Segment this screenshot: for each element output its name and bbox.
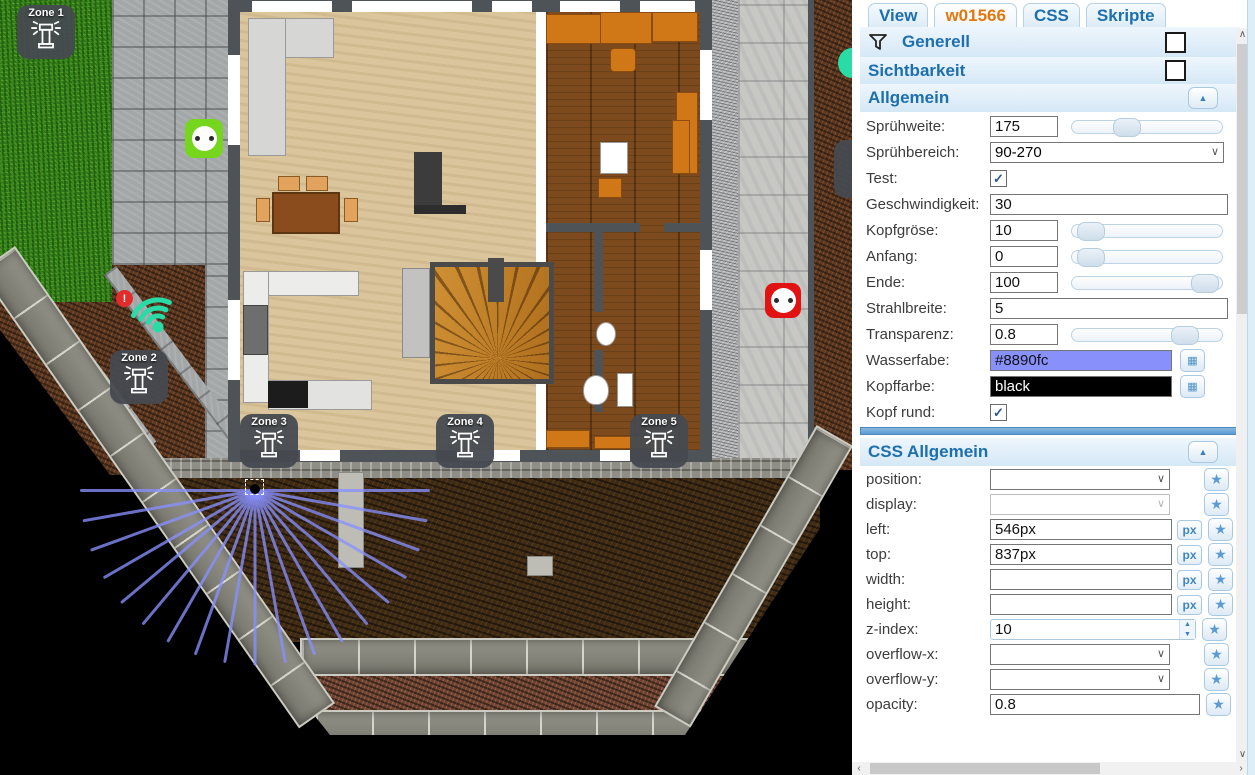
- field-ende: Ende:: [866, 271, 1238, 294]
- field-strahlbreite: Strahlbreite:: [866, 297, 1238, 320]
- px-unit-button[interactable]: px: [1177, 545, 1202, 565]
- field-transparenz: Transparenz:: [866, 323, 1238, 346]
- color-picker-button[interactable]: ▦: [1180, 349, 1205, 372]
- scroll-left-icon[interactable]: ‹: [852, 763, 866, 774]
- sprinkler-icon: [124, 365, 154, 397]
- left-input[interactable]: [990, 519, 1172, 540]
- desk: [600, 12, 652, 44]
- dining-chair: [344, 198, 358, 222]
- favorite-button[interactable]: ★: [1204, 668, 1229, 691]
- spray-ray: [80, 489, 255, 492]
- px-unit-button[interactable]: px: [1177, 520, 1202, 540]
- sink: [596, 322, 616, 346]
- outlet-green[interactable]: [185, 119, 223, 158]
- position-select[interactable]: ∨: [990, 469, 1170, 490]
- zone-marker-2[interactable]: Zone 2: [110, 350, 168, 404]
- top-input[interactable]: [990, 544, 1172, 565]
- tab-widget-w01566[interactable]: w01566: [934, 3, 1017, 27]
- css-field-overflowx: overflow-x: ∨ ★: [866, 643, 1238, 666]
- wardrobe: [672, 120, 690, 174]
- zone-marker-5[interactable]: Zone 5: [630, 414, 688, 468]
- zone-label: Zone 5: [641, 416, 676, 429]
- filter-icon[interactable]: [868, 33, 888, 51]
- allgemein-title: Allgemein: [868, 88, 949, 108]
- collapse-button[interactable]: ▲: [1188, 441, 1218, 463]
- dining-chair: [256, 198, 270, 222]
- chevron-down-icon: ∨: [1157, 472, 1165, 485]
- sprinkler-icon: [254, 429, 284, 461]
- kopfrund-checkbox[interactable]: ✓: [990, 404, 1007, 421]
- socket-icon: [192, 126, 217, 151]
- field-kopfgroese: Kopfgröse:: [866, 219, 1238, 242]
- step-up-icon[interactable]: ▲: [1180, 620, 1195, 630]
- number-stepper[interactable]: ▲▼: [1179, 620, 1195, 639]
- sprinkler-icon: [450, 429, 480, 461]
- dining-table: [272, 192, 340, 234]
- favorite-button[interactable]: ★: [1208, 593, 1233, 616]
- css-field-overflowy: overflow-y: ∨ ★: [866, 668, 1238, 691]
- transparenz-slider[interactable]: [1071, 328, 1223, 342]
- zindex-input[interactable]: [990, 619, 1196, 640]
- css-field-top: top: px ★: [866, 543, 1238, 566]
- opacity-input[interactable]: [990, 694, 1200, 715]
- kopfgroese-slider[interactable]: [1071, 224, 1223, 238]
- field-wasserfarbe: Wasserfabe: ▦: [866, 349, 1238, 372]
- toilet: [583, 375, 609, 405]
- sichtbarkeit-row: Sichtbarkeit: [860, 57, 1240, 84]
- favorite-button[interactable]: ★: [1208, 568, 1233, 591]
- favorite-button[interactable]: ★: [1204, 468, 1229, 491]
- px-unit-button[interactable]: px: [1177, 570, 1202, 590]
- wasserfarbe-input[interactable]: [990, 350, 1172, 371]
- scroll-right-icon[interactable]: ›: [1234, 763, 1248, 774]
- geschwindigkeit-input[interactable]: [990, 194, 1228, 215]
- section-divider: [860, 427, 1240, 435]
- step-down-icon[interactable]: ▼: [1180, 630, 1195, 640]
- display-select[interactable]: ∨: [990, 494, 1170, 515]
- spray-ray: [255, 489, 430, 492]
- field-kopfrund: Kopf rund: ✓: [866, 401, 1238, 424]
- transparenz-input[interactable]: [990, 324, 1058, 345]
- zone-marker-4[interactable]: Zone 4: [436, 414, 494, 468]
- height-input[interactable]: [990, 594, 1172, 615]
- width-input[interactable]: [990, 569, 1172, 590]
- allgemein-header[interactable]: Allgemein ▲: [860, 84, 1240, 112]
- ende-input[interactable]: [990, 272, 1058, 293]
- stove-base: [414, 205, 466, 214]
- dresser: [598, 178, 622, 198]
- generell-label: Generell: [902, 32, 970, 52]
- spruehweite-input[interactable]: [990, 116, 1058, 137]
- favorite-button[interactable]: ★: [1204, 493, 1229, 516]
- stone-path-right: [738, 0, 810, 462]
- gravel-strip: [712, 0, 738, 462]
- css-allgemein-title: CSS Allgemein: [868, 442, 988, 462]
- color-picker-button[interactable]: ▦: [1180, 375, 1205, 398]
- panel-horizontal-scrollbar[interactable]: ‹ ›: [852, 762, 1248, 775]
- sprinkler-head[interactable]: [250, 484, 260, 494]
- field-spruehweite: Sprühweite:: [866, 115, 1238, 138]
- socket-icon: [771, 288, 796, 313]
- zone-label: Zone 1: [28, 7, 63, 20]
- dining-chair: [306, 176, 328, 191]
- favorite-button[interactable]: ★: [1208, 518, 1233, 541]
- collapse-button[interactable]: ▲: [1188, 87, 1218, 109]
- scrollbar-thumb[interactable]: [870, 763, 1100, 774]
- field-spruehbereich: Sprühbereich: 90-270 ∨: [866, 141, 1238, 164]
- stairs-notch: [488, 258, 504, 302]
- css-field-left: left: px ★: [866, 518, 1238, 541]
- office-chair: [610, 48, 636, 72]
- sofa: [248, 18, 286, 156]
- floorplan-canvas[interactable]: Zone 1 Zone 2 Zone 3 Zone 4 Zone 5: [0, 0, 852, 775]
- zone-marker-partial[interactable]: [834, 140, 852, 198]
- cabinet: [652, 12, 698, 42]
- desk: [546, 14, 604, 44]
- tab-bar: View w01566 CSS Skripte: [852, 0, 1255, 27]
- field-test: Test: ✓: [866, 167, 1238, 190]
- outlet-red[interactable]: [765, 283, 801, 318]
- generell-row: Generell: [860, 27, 1240, 57]
- css-field-width: width: px ★: [866, 568, 1238, 591]
- generell-checkbox[interactable]: [1165, 32, 1186, 53]
- tab-css[interactable]: CSS: [1023, 3, 1080, 27]
- chevron-down-icon: ∨: [1157, 497, 1165, 510]
- concrete-pillar: [527, 556, 553, 576]
- zone-label: Zone 4: [447, 416, 482, 429]
- ende-slider[interactable]: [1071, 276, 1223, 290]
- browser-scrollbar-gutter: [1247, 0, 1255, 775]
- px-unit-button[interactable]: px: [1177, 595, 1202, 615]
- alert-badge: !: [116, 290, 133, 307]
- dining-chair: [278, 176, 300, 191]
- kopfgroese-input[interactable]: [990, 220, 1058, 241]
- tall-cabinet: [402, 268, 430, 358]
- test-checkbox[interactable]: ✓: [990, 170, 1007, 187]
- shower: [617, 373, 633, 407]
- favorite-button[interactable]: ★: [1206, 693, 1231, 716]
- zone-marker-1[interactable]: Zone 1: [17, 5, 75, 59]
- overflow-x-select[interactable]: ∨: [990, 644, 1170, 665]
- css-field-position: position: ∨ ★: [866, 468, 1238, 491]
- css-allgemein-header[interactable]: CSS Allgemein ▲: [860, 438, 1240, 466]
- overflow-y-select[interactable]: ∨: [990, 669, 1170, 690]
- sprinkler-icon: [644, 429, 674, 461]
- chevron-down-icon: ∨: [1211, 145, 1219, 158]
- field-kopffarbe: Kopffarbe: ▦: [866, 375, 1238, 398]
- bed: [600, 142, 628, 174]
- css-field-zindex: z-index: ▲▼ ★: [866, 618, 1238, 641]
- favorite-button[interactable]: ★: [1202, 618, 1227, 641]
- favorite-button[interactable]: ★: [1208, 543, 1233, 566]
- tab-skripte[interactable]: Skripte: [1086, 3, 1166, 27]
- anfang-input[interactable]: [990, 246, 1058, 267]
- spray-ray: [254, 491, 257, 666]
- kitchen-sink: [243, 305, 268, 355]
- stove: [414, 152, 442, 208]
- kopffarbe-input[interactable]: [990, 376, 1172, 397]
- house: [228, 0, 712, 462]
- favorite-button[interactable]: ★: [1204, 643, 1229, 666]
- css-field-height: height: px ★: [866, 593, 1238, 616]
- zone-marker-3[interactable]: Zone 3: [240, 414, 298, 468]
- kitchen-dark-unit: [268, 381, 308, 408]
- sideboard: [546, 430, 590, 448]
- sichtbarkeit-label: Sichtbarkeit: [868, 61, 965, 81]
- slider-handle[interactable]: [1113, 118, 1141, 137]
- sprinkler-icon: [31, 20, 61, 52]
- field-anfang: Anfang:: [866, 245, 1238, 268]
- css-field-display: display: ∨ ★: [866, 493, 1238, 516]
- css-field-opacity: opacity: ★: [866, 693, 1238, 716]
- spruehweite-slider[interactable]: [1071, 120, 1223, 134]
- wifi-status[interactable]: !: [122, 292, 174, 340]
- chevron-down-icon: ∨: [1157, 672, 1165, 685]
- spruehbereich-select[interactable]: 90-270 ∨: [990, 142, 1224, 163]
- field-geschwindigkeit: Geschwindigkeit:: [866, 193, 1238, 216]
- chevron-down-icon: ∨: [1157, 647, 1165, 660]
- strahlbreite-input[interactable]: [990, 298, 1228, 319]
- tab-view[interactable]: View: [868, 3, 928, 27]
- zone-label: Zone 3: [251, 416, 286, 429]
- anfang-slider[interactable]: [1071, 250, 1223, 264]
- sichtbarkeit-checkbox[interactable]: [1165, 60, 1186, 81]
- zone-label: Zone 2: [121, 352, 156, 365]
- properties-panel: View w01566 CSS Skripte Generell Sichtba…: [852, 0, 1255, 775]
